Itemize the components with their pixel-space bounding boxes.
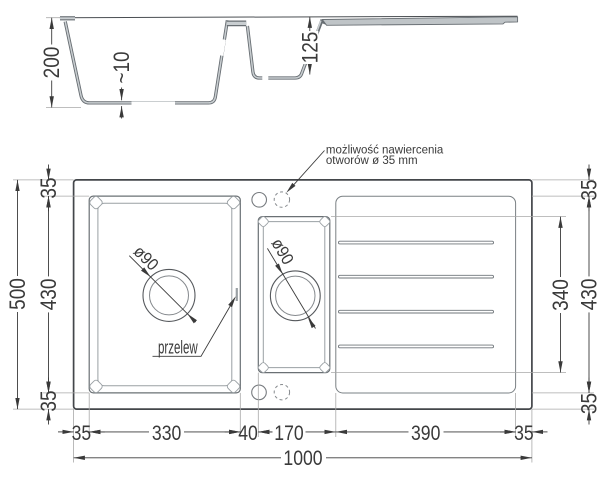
svg-text:1000: 1000 [283,447,322,470]
svg-text:35: 35 [36,390,61,411]
svg-text:35: 35 [36,177,61,198]
svg-text:200: 200 [39,47,64,79]
svg-text:170: 170 [274,422,303,445]
svg-text:125: 125 [297,32,322,64]
svg-text:~10: ~10 [109,52,134,84]
svg-text:35: 35 [577,393,602,414]
svg-text:500: 500 [5,278,30,310]
svg-text:390: 390 [411,422,440,445]
svg-text:430: 430 [577,279,602,311]
svg-text:340: 340 [548,279,573,311]
svg-text:ø90: ø90 [267,235,297,268]
svg-text:ø90: ø90 [130,242,163,275]
svg-text:otworów ø 35 mm: otworów ø 35 mm [326,153,418,167]
svg-text:430: 430 [36,279,61,311]
svg-text:35: 35 [514,422,534,445]
svg-text:40: 40 [238,422,258,445]
svg-text:przelew: przelew [158,338,198,358]
svg-text:330: 330 [152,422,181,445]
svg-text:35: 35 [72,422,92,445]
